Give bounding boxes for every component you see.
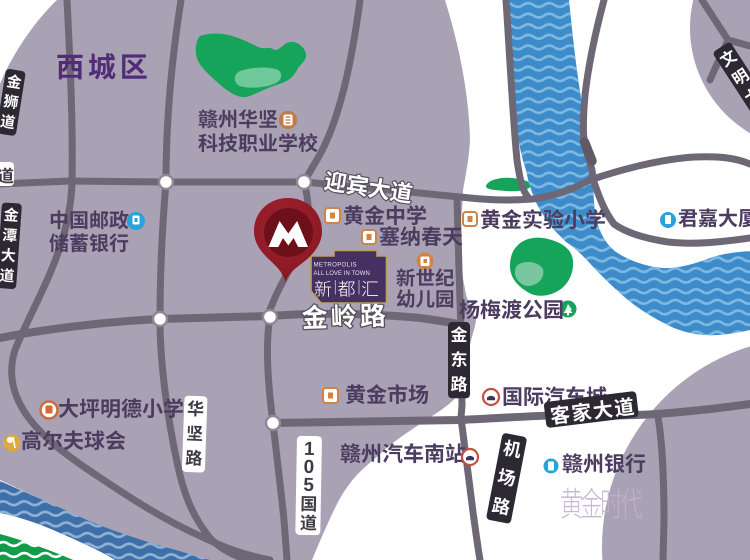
svg-text:METROPOLIS: METROPOLIS — [314, 262, 357, 269]
svg-text:5: 5 — [303, 475, 314, 496]
svg-text:ALL LOVE IN TOWN: ALL LOVE IN TOWN — [314, 271, 370, 277]
